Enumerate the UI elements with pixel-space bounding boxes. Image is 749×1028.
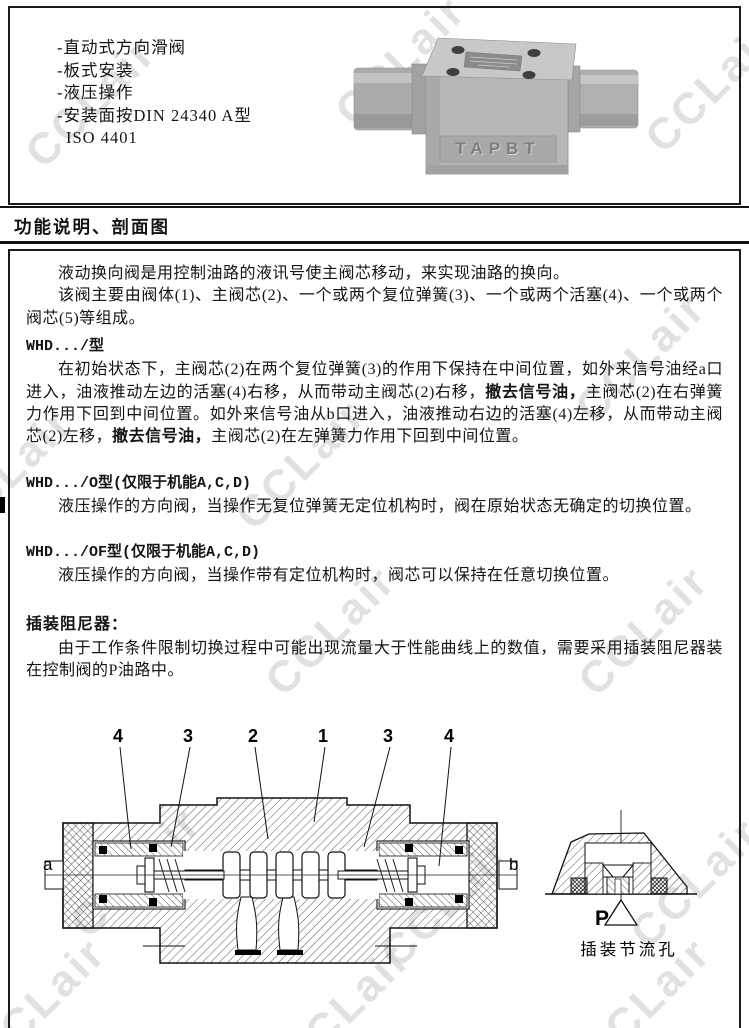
seal [405,898,413,906]
catalog-page: CCLair CCLair CCLair CCLair CCLair CCLai… [0,0,749,1028]
drain-passage [279,897,299,950]
edge-tick [0,497,5,513]
port-p-label: P [595,907,609,930]
seal-crosshatch [651,878,667,894]
whd-paragraph: 在初始状态下，主阀芯(2)在两个复位弹簧(3)的作用下保持在中间位置，如外来信号… [26,359,723,449]
heading-whd: WHD.../型 [26,337,723,357]
damper-paragraph: 由于工作条件限制切换过程中可能出现流量大于性能曲线上的数值，需要采用插装阻尼器装… [26,638,723,683]
part-label-3: 3 [183,726,193,746]
part-label-2: 2 [248,726,258,746]
seal [149,898,157,906]
whd-of-paragraph: 液压操作的方向阀，当操作带有定位机构时，阀芯可以保持在任意切换位置。 [26,565,723,587]
valve-photo-drawing: TAPBT TAPBT [342,24,652,189]
port-triangle-icon [605,900,637,925]
left-sleeve-bottom [95,894,183,907]
intro-paragraph-1: 液动换向阀是用控制油路的液讯号使主阀芯移动，来实现油路的换向。 [26,263,723,285]
heading-whd-o: WHD.../O型(仅限于机能A,C,D) [26,474,723,494]
part-label-4b: 4 [444,726,454,746]
part-label-4: 4 [113,726,123,746]
seal [455,846,463,854]
drain-passage [237,897,257,950]
shade-left [426,76,440,174]
feature-item: -直动式方向滑阀 [57,37,252,60]
port-seal [235,950,261,955]
whd-bold-text: 撤去信号油， [112,428,211,445]
feature-box: -直动式方向滑阀 -板式安装 -液压操作 -安装面按DIN 24340 A型 I… [8,6,741,205]
seal [405,844,413,852]
orifice-drawing: P 插装节流孔 [545,808,705,968]
cross-section-diagram: a b 4 3 2 1 3 4 [35,722,527,970]
bolt-hole [447,68,460,76]
part-label-3b: 3 [383,726,393,746]
port-b-label: b [509,855,518,874]
feature-item: -板式安装 [57,60,252,83]
shadow [578,114,638,126]
cavity-shoulder [585,863,603,894]
seal [99,895,107,903]
whd-bold-text: 撤去信号油， [485,384,585,401]
orifice-caption: 插装节流孔 [580,940,678,959]
heading-whd-of: WHD.../OF型(仅限于机能A,C,D) [26,543,723,563]
cavity-shoulder [633,863,651,894]
right-sleeve-top [379,843,467,856]
shade-bottom [426,165,568,174]
whd-o-paragraph: 液压操作的方向阀，当操作无复位弹簧无定位机构时，阀在原始状态无确定的切换位置。 [26,496,723,518]
section-title: 功能说明、剖面图 [0,208,749,239]
seal [455,895,463,903]
port-a-label: a [43,855,53,874]
port-seal [277,950,303,955]
feature-item: ISO 4401 [57,127,252,150]
left-end-cap-section [63,823,93,928]
section-header-bar: 功能说明、剖面图 [0,206,749,244]
feature-item: -安装面按DIN 24340 A型 [57,105,252,128]
seal-crosshatch [571,878,587,894]
part-label-1: 1 [318,726,328,746]
highlight [354,73,416,83]
whd-text: 主阀芯(2)在左弹簧力作用下回到中间位置。 [211,428,528,445]
seal [99,846,107,854]
orifice-channel [615,879,621,894]
intro-paragraph-2: 该阀主要由阀体(1)、主阀芯(2)、一个或两个复位弹簧(3)、一个或两个活塞(4… [26,285,723,330]
orifice-diagram: P 插装节流孔 [545,808,705,968]
right-end-cap-section [467,823,497,928]
bolt-hole [523,71,536,79]
feature-list: -直动式方向滑阀 -板式安装 -液压操作 -安装面按DIN 24340 A型 I… [57,37,252,150]
left-sleeve-top [95,843,183,856]
emboss-text: TAPBT [455,139,540,158]
feature-item: -液压操作 [57,82,252,105]
bolt-hole [452,46,465,54]
bolt-hole [528,49,541,57]
valve-photo: TAPBT TAPBT [342,24,652,189]
highlight [578,75,638,84]
cross-section-drawing: a b 4 3 2 1 3 4 [35,722,527,970]
seal [149,844,157,852]
shadow [354,114,416,128]
right-sleeve-bottom [379,894,467,907]
heading-damper: 插装阻尼器： [26,615,723,635]
